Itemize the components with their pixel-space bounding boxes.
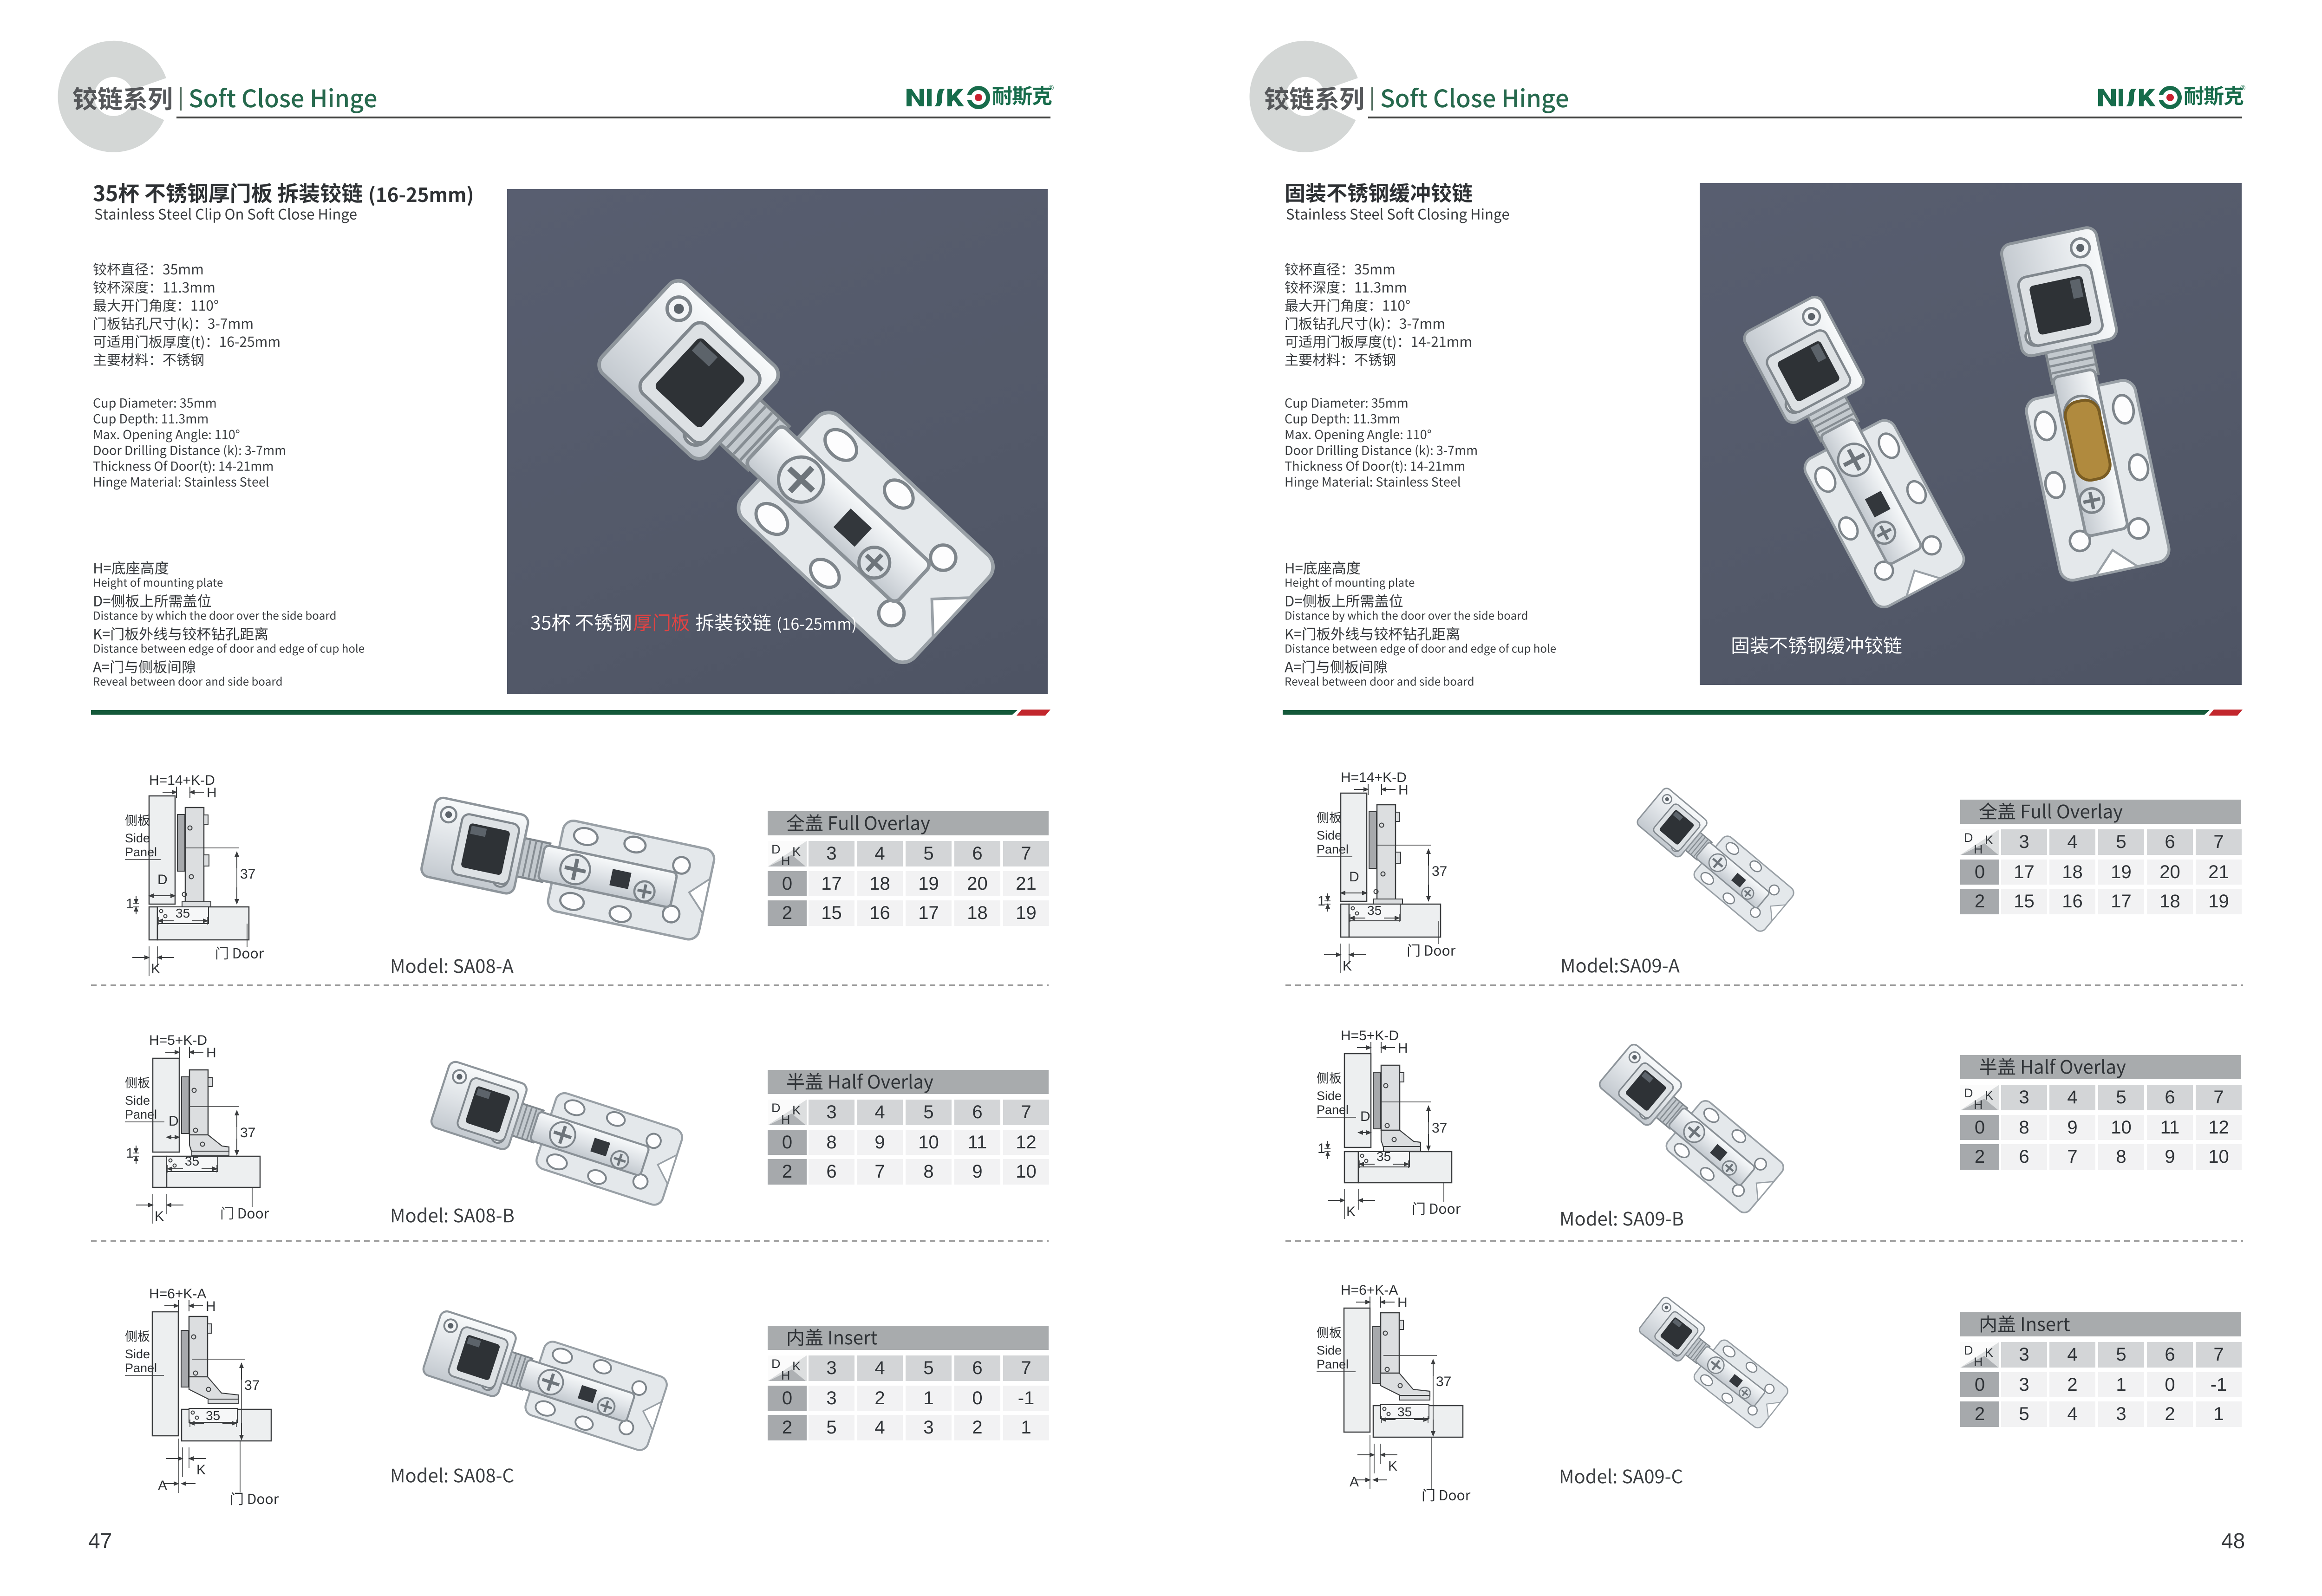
svg-text:1: 1: [1318, 893, 1325, 909]
svg-text:35: 35: [206, 1408, 220, 1423]
svg-text:H=14+K-D: H=14+K-D: [149, 773, 215, 788]
svg-text:H=6+K-A: H=6+K-A: [149, 1286, 206, 1302]
svg-text:K: K: [1985, 1088, 1993, 1102]
svg-text:1: 1: [126, 896, 134, 912]
svg-text:H=5+K-D: H=5+K-D: [1341, 1028, 1399, 1043]
svg-text:1: 1: [1318, 1141, 1325, 1156]
svg-text:D: D: [1360, 1109, 1370, 1124]
svg-text:35: 35: [185, 1154, 199, 1168]
svg-text:Side: Side: [125, 1347, 150, 1361]
svg-text:H: H: [207, 785, 217, 801]
svg-text:Panel: Panel: [1317, 842, 1349, 856]
svg-text:35: 35: [176, 906, 190, 920]
svg-text:K: K: [1346, 1204, 1356, 1219]
svg-text:K: K: [1985, 1346, 1993, 1360]
svg-text:K: K: [151, 961, 160, 977]
svg-text:35: 35: [1367, 903, 1382, 918]
svg-text:H: H: [1398, 1041, 1408, 1056]
svg-text:H: H: [1974, 842, 1983, 855]
svg-text:H: H: [1974, 1355, 1983, 1368]
svg-text:37: 37: [1436, 1374, 1451, 1389]
svg-text:Panel: Panel: [1317, 1357, 1349, 1371]
svg-text:H=14+K-D: H=14+K-D: [1341, 770, 1407, 785]
svg-text:Side: Side: [1317, 1089, 1342, 1103]
svg-text:H: H: [1398, 782, 1409, 798]
svg-text:Side: Side: [125, 831, 150, 845]
svg-text:K: K: [792, 1359, 801, 1373]
svg-text:Side: Side: [125, 1094, 150, 1107]
svg-text:37: 37: [244, 1378, 260, 1393]
svg-text:D: D: [157, 872, 168, 887]
svg-text:K: K: [1388, 1459, 1397, 1474]
svg-text:K: K: [792, 1103, 801, 1117]
svg-text:37: 37: [240, 866, 255, 882]
svg-text:D: D: [771, 1101, 781, 1115]
svg-text:37: 37: [1432, 1120, 1447, 1136]
svg-text:H: H: [1974, 1098, 1983, 1110]
svg-text:H=6+K-A: H=6+K-A: [1341, 1283, 1398, 1298]
svg-text:D: D: [1964, 1343, 1973, 1357]
svg-text:D: D: [169, 1114, 179, 1129]
svg-text:Panel: Panel: [125, 1361, 157, 1375]
svg-text:A: A: [158, 1478, 167, 1493]
svg-text:D: D: [1349, 869, 1359, 885]
svg-text:H: H: [1397, 1295, 1408, 1310]
svg-text:35: 35: [1397, 1405, 1412, 1419]
svg-text:K: K: [792, 845, 801, 859]
svg-text:D: D: [771, 1357, 781, 1371]
svg-text:K: K: [196, 1462, 206, 1478]
svg-text:H: H: [206, 1299, 216, 1314]
svg-text:Panel: Panel: [1317, 1103, 1349, 1117]
svg-text:H: H: [206, 1045, 216, 1061]
svg-text:K: K: [155, 1209, 164, 1224]
svg-text:35: 35: [1376, 1149, 1391, 1164]
svg-text:H: H: [781, 854, 790, 866]
svg-text:Panel: Panel: [125, 1107, 157, 1121]
svg-text:37: 37: [1432, 864, 1447, 879]
svg-text:D: D: [1964, 1086, 1973, 1100]
svg-text:H=5+K-D: H=5+K-D: [149, 1033, 207, 1048]
svg-text:Side: Side: [1317, 1343, 1342, 1357]
svg-text:Panel: Panel: [125, 845, 157, 859]
svg-text:A: A: [1350, 1474, 1359, 1490]
svg-text:K: K: [1985, 833, 1993, 847]
svg-text:37: 37: [240, 1125, 255, 1140]
svg-text:D: D: [771, 842, 781, 856]
svg-text:H: H: [781, 1113, 790, 1125]
svg-text:K: K: [1343, 958, 1352, 974]
svg-text:D: D: [1964, 831, 1973, 845]
svg-text:Side: Side: [1317, 828, 1342, 842]
svg-text:H: H: [781, 1368, 790, 1381]
svg-text:1: 1: [126, 1146, 134, 1161]
